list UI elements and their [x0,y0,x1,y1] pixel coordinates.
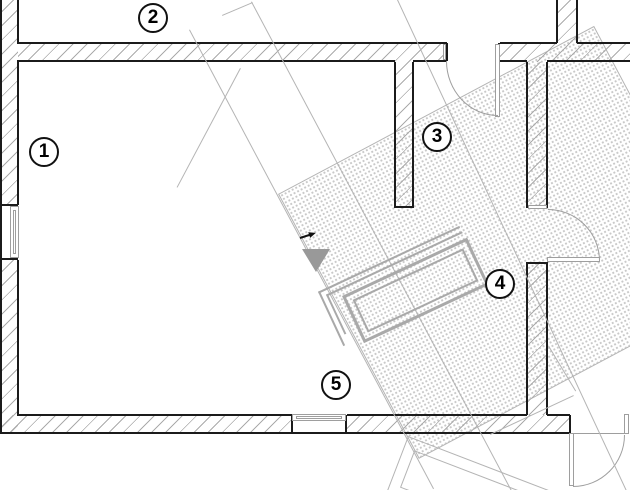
wall-edge [547,60,630,62]
callout-5-label: 5 [331,374,342,396]
window-symbol-inner [296,416,342,419]
wall-edge [577,42,630,44]
wall-edge [0,432,570,434]
wall-edge [500,42,557,44]
wall-segment [527,62,547,208]
wall-edge [394,206,414,208]
wall-edge [0,0,2,433]
wall-segment [0,260,18,433]
wall-edge [394,62,396,208]
door-frame [443,44,446,60]
wall-segment [0,415,291,433]
wall-edge [17,260,19,415]
callout-1[interactable]: 1 [29,137,59,167]
callout-3[interactable]: 3 [422,122,452,152]
wall-edge [546,62,548,208]
wall-edge [412,62,414,208]
window-jamb-edge [0,258,18,260]
callout-2-label: 2 [148,7,159,29]
wall-segment [347,415,570,433]
wall-segment [395,62,413,208]
wall-edge [17,42,447,44]
wall-edge [500,60,527,62]
wall-edge [576,0,578,43]
door-frame [624,414,629,434]
wall-edge [526,262,528,415]
wall-edge [347,414,527,416]
door-jamb-edge [569,415,571,433]
door-jamb-edge [446,43,448,61]
wall-edge [546,262,548,415]
callout-2[interactable]: 2 [138,3,168,33]
wall-edge [556,0,558,43]
wall-segment [0,0,18,204]
window-symbol-inner [13,210,16,254]
callout-4[interactable]: 4 [485,269,515,299]
ghost-line [177,68,241,188]
callout-4-label: 4 [495,273,506,295]
wall-segment [557,0,577,43]
wall-edge [17,0,19,43]
wall-edge [526,262,548,264]
wall-edge [17,62,19,205]
callout-1-label: 1 [39,141,50,163]
slope-marker-triangle[interactable] [302,249,330,272]
floor-plan-canvas: 1 2 3 4 5 [0,0,630,490]
wall-edge [413,60,447,62]
wall-edge [526,62,528,208]
ghost-line [222,2,253,16]
door-swing-arc [573,435,625,487]
callout-3-label: 3 [432,126,443,148]
wall-edge [17,414,292,416]
callout-5[interactable]: 5 [321,370,351,400]
wall-edge [547,414,570,416]
door-frame [528,205,547,209]
